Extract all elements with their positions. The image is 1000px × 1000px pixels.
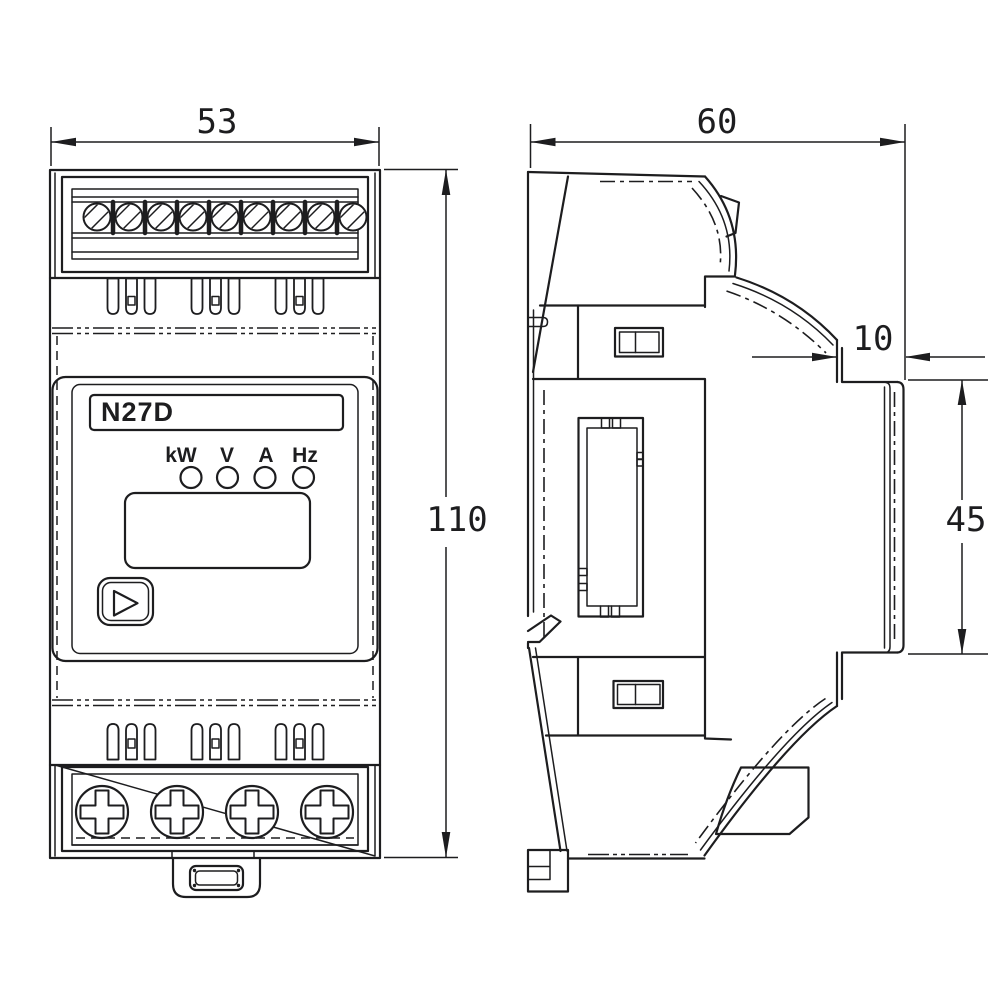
side-recessed-panel — [579, 418, 644, 617]
play-triangle-icon — [114, 591, 138, 616]
upper-clamp-slider — [615, 328, 663, 357]
dimensional-drawing-page: N27D kW V A Hz — [0, 0, 1000, 1000]
side-top-edge — [528, 172, 705, 177]
dimension-height-110: 110 — [384, 170, 488, 858]
led-indicators — [181, 467, 315, 488]
front-bezel: N27D kW V A Hz — [53, 377, 378, 661]
led-indicator — [181, 467, 202, 488]
indicator-label-kw: kW — [165, 444, 197, 467]
lower-vent-slots-row — [108, 724, 324, 760]
model-label: N27D — [101, 397, 174, 427]
lower-clamp-slider — [614, 681, 664, 708]
indicator-label-a: A — [258, 444, 273, 467]
front-view: N27D kW V A Hz — [50, 102, 488, 897]
upper-front-curve — [737, 278, 838, 341]
side-view: 60 10 45 — [528, 102, 988, 892]
lower-case-joint-line — [52, 700, 378, 706]
front-depth-dim-text: 10 — [853, 319, 894, 359]
dimension-depth-60: 60 — [531, 102, 906, 380]
dimension-front-depth-10: 10 — [752, 319, 985, 361]
side-bottom-clip — [528, 850, 568, 892]
dimension-width-53: 53 — [51, 102, 379, 166]
din-rail-tab — [173, 858, 260, 897]
depth-dim-text: 60 — [697, 102, 738, 142]
advance-button — [98, 578, 153, 625]
indicator-label-hz: Hz — [292, 444, 318, 467]
dimension-front-height-45: 45 — [908, 380, 988, 654]
front-face-strips — [885, 382, 904, 653]
lower-terminal-block — [716, 768, 809, 835]
width-dim-text: 53 — [197, 102, 238, 142]
height-dim-text: 110 — [426, 500, 487, 540]
din-top-catch — [528, 318, 548, 327]
display-window — [125, 493, 310, 568]
upper-case-joint-line — [52, 328, 378, 334]
indicator-label-v: V — [220, 444, 234, 467]
upper-vent-slots — [108, 279, 324, 315]
technical-drawing: N27D kW V A Hz — [0, 0, 1000, 1000]
front-height-dim-text: 45 — [946, 500, 987, 540]
top-terminal-block — [62, 177, 379, 272]
phillips-screw — [76, 786, 128, 838]
